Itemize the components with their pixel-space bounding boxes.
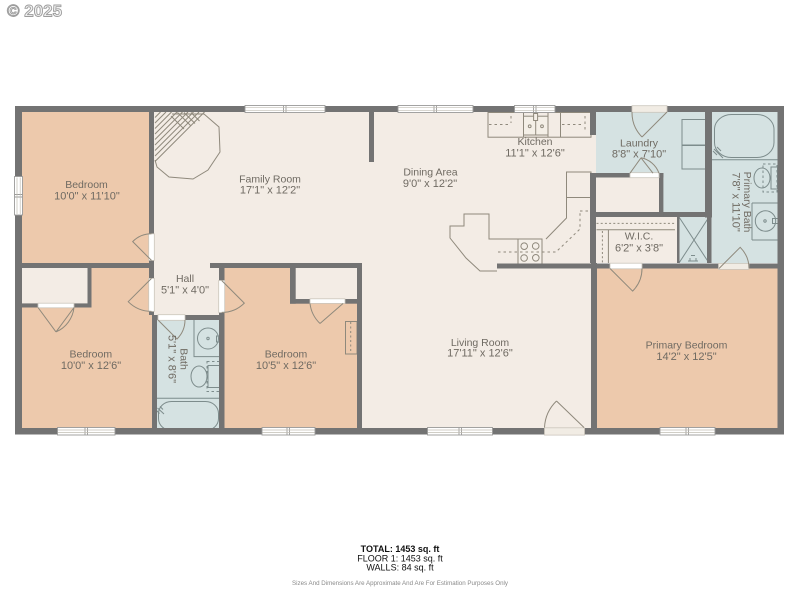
svg-text:Primary Bath: Primary Bath [741,172,753,233]
svg-text:10'5" x 12'6": 10'5" x 12'6" [256,360,316,372]
svg-text:17'1" x 12'2": 17'1" x 12'2" [240,185,300,197]
svg-text:Family Room: Family Room [239,173,301,185]
svg-text:Hall: Hall [176,273,194,285]
svg-text:7'8" x 11'10": 7'8" x 11'10" [730,172,742,232]
svg-text:Bedroom: Bedroom [69,349,112,361]
svg-text:Bedroom: Bedroom [65,179,108,191]
svg-text:8'8" x 7'10": 8'8" x 7'10" [612,148,666,160]
svg-text:11'1" x 12'6": 11'1" x 12'6" [505,147,565,159]
svg-text:Sizes And Dimensions Are Appro: Sizes And Dimensions Are Approximate And… [292,580,509,587]
svg-text:Primary Bedroom: Primary Bedroom [646,340,728,352]
svg-text:WALLS: 84 sq. ft: WALLS: 84 sq. ft [366,563,434,573]
svg-text:Bath: Bath [177,348,189,370]
svg-text:Dining Area: Dining Area [403,167,457,179]
svg-text:17'11" x 12'6": 17'11" x 12'6" [447,348,513,360]
svg-text:W.I.C.: W.I.C. [625,231,654,243]
svg-text:14'2" x 12'5": 14'2" x 12'5" [656,351,716,363]
svg-text:6'2" x 3'8": 6'2" x 3'8" [615,243,663,255]
svg-text:Bedroom: Bedroom [265,349,308,361]
svg-text:5'1" x 8'6": 5'1" x 8'6" [165,335,177,383]
svg-text:10'0" x 12'6": 10'0" x 12'6" [61,360,121,372]
svg-text:5'1" x 4'0": 5'1" x 4'0" [161,285,209,297]
svg-text:9'0" x 12'2": 9'0" x 12'2" [403,178,457,190]
svg-text:© 2025: © 2025 [7,2,62,21]
svg-text:10'0" x 11'10": 10'0" x 11'10" [54,191,120,203]
svg-text:Kitchen: Kitchen [517,136,552,148]
